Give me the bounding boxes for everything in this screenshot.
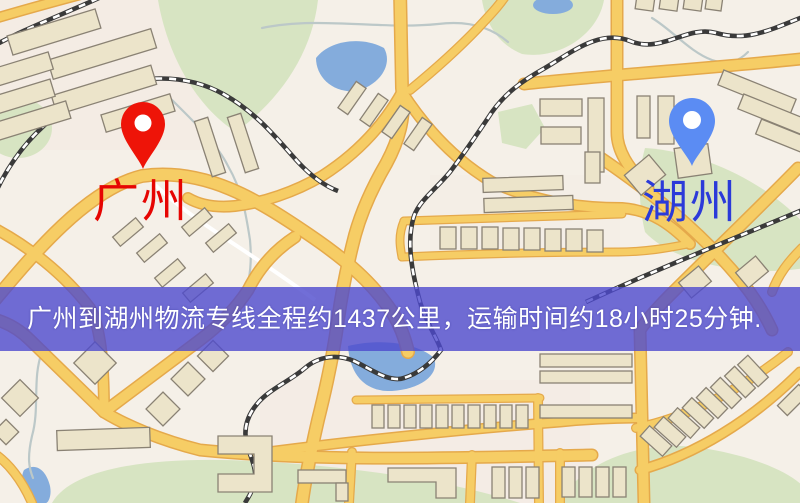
route-info-banner: 广州到湖州物流专线全程约1437公里，运输时间约18小时25分钟. xyxy=(0,287,800,351)
huzhou-label: 湖州 xyxy=(642,180,738,226)
map-canvas xyxy=(0,0,800,503)
guangzhou-label: 广州 xyxy=(93,179,189,225)
map-screenshot: 广州 湖州 广州到湖州物流专线全程约1437公里，运输时间约18小时25分钟. xyxy=(0,0,800,503)
